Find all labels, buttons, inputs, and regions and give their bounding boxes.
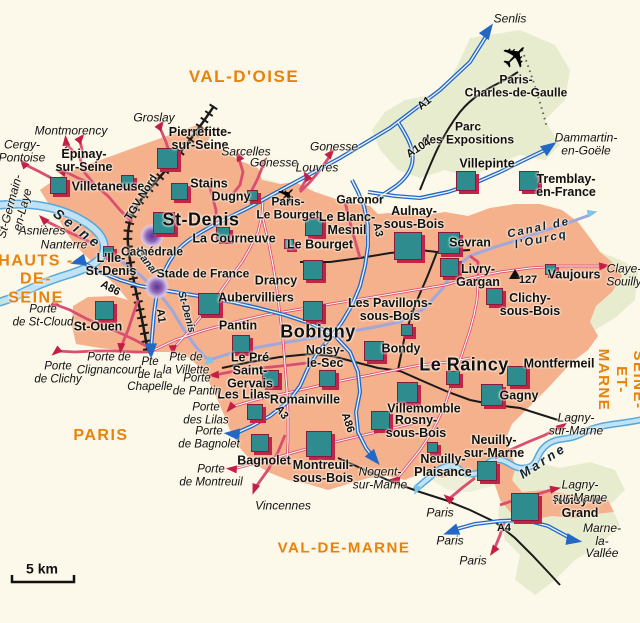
scale-bar	[12, 575, 74, 582]
marker-stade-de-france	[145, 275, 169, 299]
map-canvas: ✈ ✈ VAL-D'OISEHAUTS - DE- SEINEPARISVAL-…	[0, 0, 640, 623]
marker-cathedrale	[140, 224, 164, 248]
map-artwork: ✈ ✈	[0, 0, 640, 623]
